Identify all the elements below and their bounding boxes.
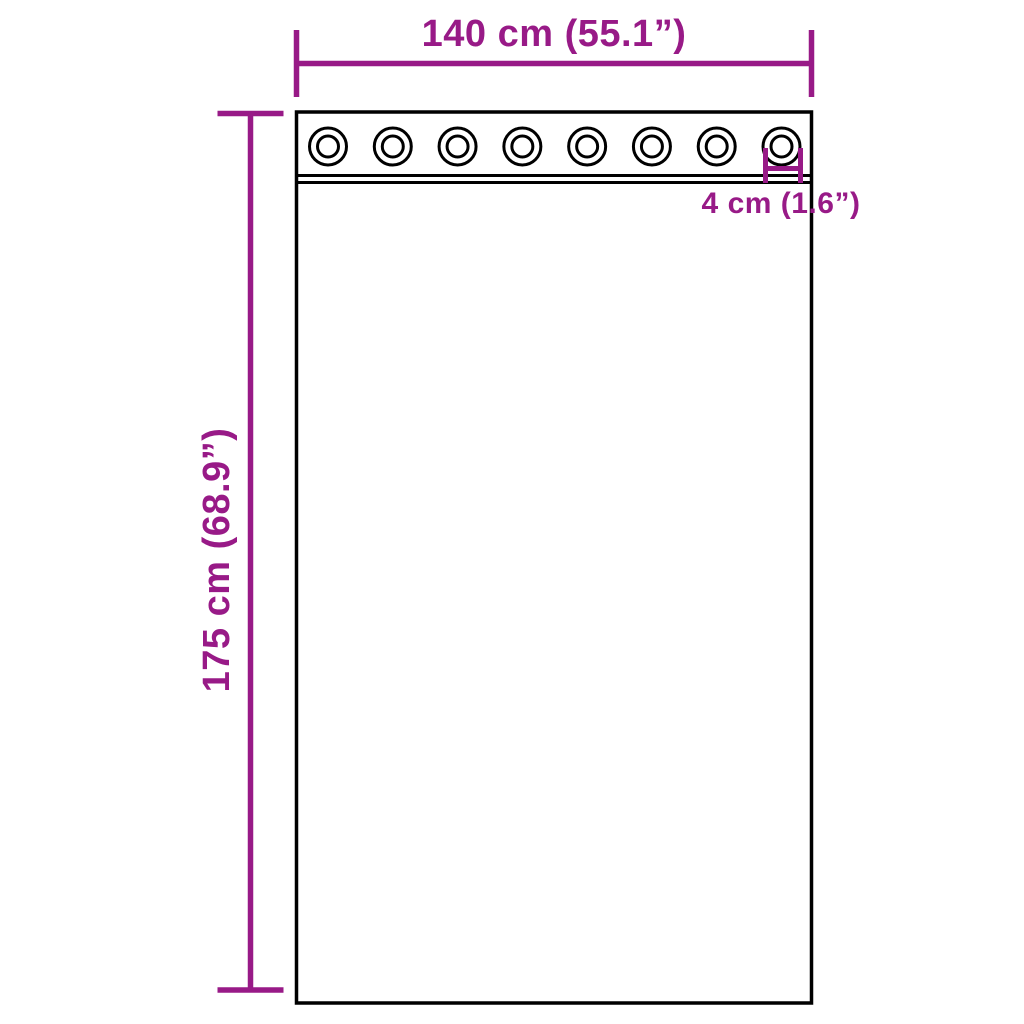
width-dimension: 140 cm (55.1”) bbox=[297, 13, 812, 97]
width-dimension-label: 140 cm (55.1”) bbox=[422, 13, 687, 55]
product-dimension-diagram: 140 cm (55.1”) 175 cm (68.9”) 4 cm (1.6”… bbox=[0, 0, 1024, 1024]
curtain-outline bbox=[297, 112, 812, 1003]
diagram-canvas: 140 cm (55.1”) 175 cm (68.9”) 4 cm (1.6”… bbox=[0, 0, 1024, 1024]
height-dimension: 175 cm (68.9”) bbox=[196, 114, 284, 991]
height-dimension-label: 175 cm (68.9”) bbox=[196, 428, 238, 693]
curtain-panel bbox=[297, 112, 812, 1003]
grommet-dimension-label: 4 cm (1.6”) bbox=[702, 187, 861, 220]
